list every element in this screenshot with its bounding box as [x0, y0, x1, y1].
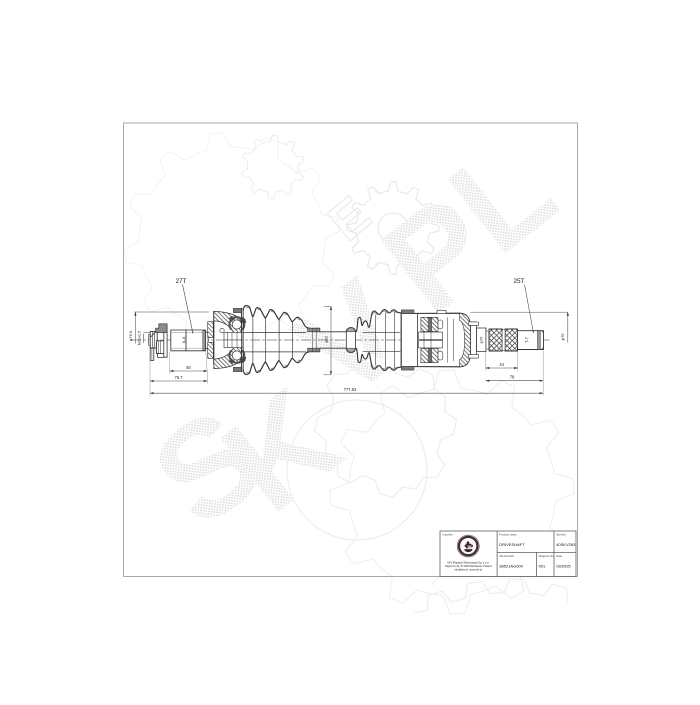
svg-text:76.7: 76.7: [175, 375, 184, 380]
svg-text:Product name: Product name: [499, 533, 517, 537]
svg-text:78: 78: [510, 375, 515, 380]
svg-text:SKV: SKV: [467, 546, 472, 548]
svg-text:φ75: φ75: [560, 333, 565, 341]
svg-text:001: 001: [539, 564, 546, 569]
svg-text:X-X: X-X: [182, 336, 187, 343]
svg-text:φ25: φ25: [478, 336, 483, 344]
svg-text:info@skv.pl, www.skv.pl: info@skv.pl, www.skv.pl: [455, 567, 483, 571]
svg-text:T-T: T-T: [524, 336, 529, 343]
svg-text:φ92: φ92: [324, 335, 329, 343]
svg-text:50: 50: [186, 365, 191, 370]
svg-text:25T: 25T: [513, 278, 524, 285]
svg-text:SKV Migdach Motoryzacja Sp. z: SKV Migdach Motoryzacja Sp. z o.o.: [447, 560, 489, 564]
svg-text:Pajeczno 41, 87-800 Wloclawek,: Pajeczno 41, 87-800 Wloclawek, Poland: [445, 564, 492, 568]
svg-text:φ76.5: φ76.5: [128, 330, 133, 341]
svg-text:M22x1.5: M22x1.5: [138, 331, 142, 345]
svg-text:Symbol: Symbol: [556, 533, 566, 537]
svg-text:DRIVESHAFT: DRIVESHAFT: [499, 542, 525, 547]
svg-text:Importer: Importer: [443, 533, 453, 537]
svg-text:OE Number: OE Number: [499, 554, 514, 558]
svg-text:Date: Date: [556, 554, 562, 558]
svg-text:44: 44: [499, 362, 504, 367]
svg-text:27T: 27T: [175, 278, 186, 285]
svg-text:38521AG000: 38521AG000: [499, 564, 523, 569]
svg-text:777.63: 777.63: [344, 387, 357, 392]
svg-text:03/2025: 03/2025: [556, 564, 571, 569]
svg-text:40SKV263: 40SKV263: [556, 542, 576, 547]
svg-text:Diagram No: Diagram No: [539, 554, 554, 558]
